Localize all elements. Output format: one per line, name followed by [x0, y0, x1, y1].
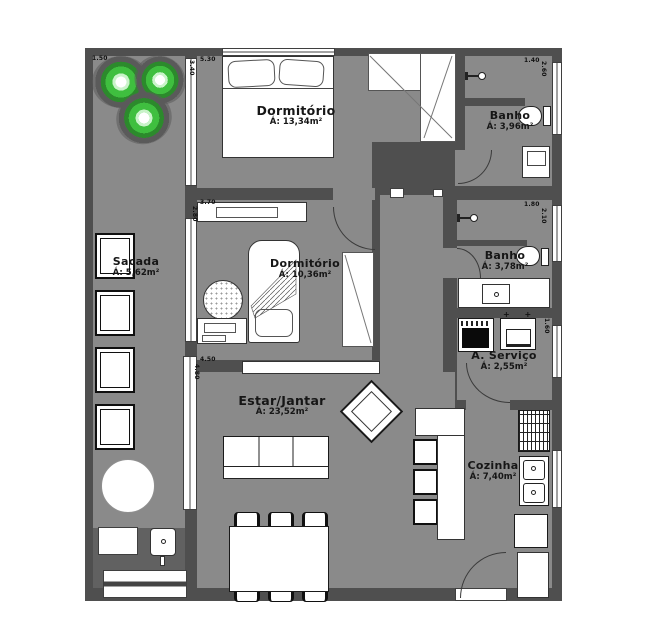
- desk: [197, 318, 247, 344]
- refrigerator: [514, 514, 548, 548]
- dim-banho-2-side: 2.10: [540, 208, 547, 224]
- pillow: [255, 309, 293, 337]
- hall-wall-stub: [372, 142, 465, 188]
- dining-table: [229, 526, 329, 592]
- servico-window: [552, 325, 562, 378]
- bar-stool: [413, 469, 437, 495]
- round-table: [101, 459, 155, 513]
- dim-banho-1-top: 1.40: [524, 57, 540, 64]
- dim-sacada-top: 1.50: [92, 55, 108, 62]
- dim-banho-2-top: 1.80: [524, 201, 540, 208]
- room-label-dormitorio-1: Dormitório Á: 13,34m²: [240, 104, 352, 128]
- dim-estar-top: 4.50: [200, 356, 216, 363]
- room-label-dormitorio-2: Dormitório Á: 10,36m²: [255, 258, 355, 280]
- single-bed: [248, 240, 300, 343]
- dormitorio-2-door-gap: [333, 188, 375, 200]
- pillow: [278, 58, 325, 87]
- room-name: Cozinha: [458, 460, 528, 473]
- laundry-tank: [500, 318, 536, 350]
- wall-fixture: [150, 528, 176, 556]
- dim-dormitorio-1-side: 3.40: [188, 60, 195, 76]
- stove-icon: [518, 410, 550, 452]
- room-area: Á: 3,96m²: [470, 123, 550, 133]
- dim-banho-1-side: 2.60: [540, 61, 547, 77]
- sacada-dormitorio-1-window: [185, 58, 197, 186]
- sideboard: [242, 361, 380, 374]
- room-name: Dormitório: [255, 258, 355, 271]
- corridor-estar-opening: [380, 360, 443, 372]
- washing-machine: [458, 318, 494, 352]
- room-name: Sacada: [100, 256, 172, 269]
- room-label-banho-1: Banho Á: 3,96m²: [470, 110, 550, 132]
- dim-estar-side: 4.80: [193, 364, 200, 380]
- room-area: Á: 23,52m²: [230, 408, 334, 418]
- pillow: [227, 59, 275, 88]
- dormitorio-1-window: [222, 48, 335, 56]
- banho-1-window: [552, 62, 562, 135]
- bottom-left-window: [103, 570, 187, 598]
- room-area: Á: 5,62m²: [100, 269, 172, 279]
- banho-2-window: [552, 205, 562, 262]
- bar-stool: [413, 499, 437, 525]
- sacada-dormitorio-2-window: [185, 218, 197, 342]
- bathroom-vanity: [522, 146, 550, 178]
- tap-symbols: + +: [503, 310, 537, 319]
- room-area: Á: 3,78m²: [465, 263, 545, 273]
- corridor-opening-1: [390, 188, 404, 198]
- dim-servico-side: 1.60: [543, 318, 550, 334]
- room-label-estar: Estar/Jantar Á: 23,52m²: [230, 394, 334, 418]
- dim-dormitorio-1-top: 5.30: [200, 56, 216, 63]
- sink-icon: [482, 284, 510, 304]
- wardrobe: [420, 53, 456, 142]
- wall-fixture-stem: [160, 556, 165, 566]
- sacada-seat: [95, 404, 135, 450]
- armchair: [203, 280, 243, 320]
- room-name: A. Serviço: [462, 350, 546, 363]
- island-counter-top: [415, 408, 465, 436]
- bar-stool: [413, 439, 437, 465]
- sacada-seat: [95, 290, 135, 336]
- room-area: Á: 10,36m²: [255, 271, 355, 281]
- room-label-servico: A. Serviço Á: 2,55m²: [462, 350, 546, 372]
- banho-2-door-gap: [443, 248, 457, 278]
- banho-2-divider-wall: [457, 240, 527, 246]
- room-label-banho-2: Banho Á: 3,78m²: [465, 250, 545, 272]
- room-name: Banho: [470, 110, 550, 123]
- kitchen-counter: [517, 552, 549, 598]
- cozinha-window: [552, 450, 562, 508]
- small-wall-opening: [98, 527, 138, 555]
- sofa: [223, 436, 329, 479]
- corridor-opening-2: [433, 189, 443, 197]
- dim-dormitorio-2-side: 2.80: [191, 206, 198, 222]
- room-area: Á: 7,40m²: [458, 473, 528, 483]
- sacada-seat: [95, 347, 135, 393]
- room-label-sacada: Sacada Á: 5,62m²: [100, 256, 172, 278]
- room-area: Á: 13,34m²: [240, 118, 352, 128]
- floor-plan: + +: [0, 0, 651, 643]
- banho-1-divider-wall: [465, 98, 525, 106]
- dim-dormitorio-2-top: 3.70: [200, 199, 216, 206]
- room-name: Banho: [465, 250, 545, 263]
- room-label-cozinha: Cozinha Á: 7,40m²: [458, 460, 528, 482]
- room-area: Á: 2,55m²: [462, 363, 546, 373]
